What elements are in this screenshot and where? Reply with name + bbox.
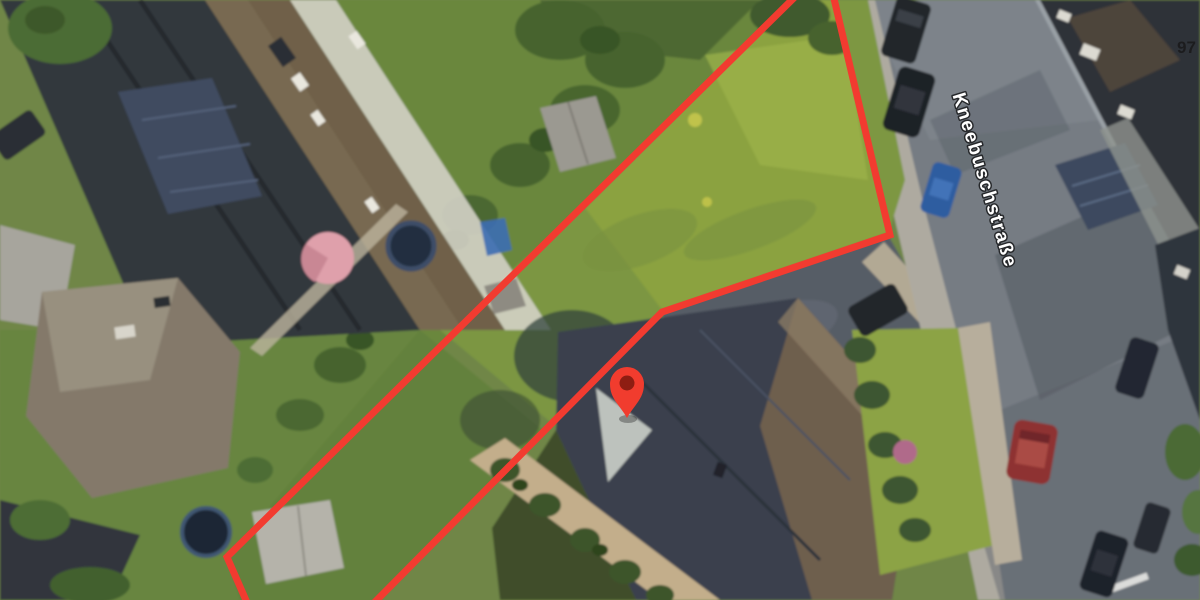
house-number-label: 97 xyxy=(1177,38,1196,57)
aerial-imagery xyxy=(0,0,1200,600)
garden-pool xyxy=(182,508,230,556)
bush xyxy=(512,479,528,491)
bush xyxy=(529,493,561,517)
bush xyxy=(854,381,890,409)
bush xyxy=(592,544,608,556)
flower-bush xyxy=(893,440,917,464)
satellite-map[interactable]: Kneebuschstraße 97 xyxy=(0,0,1200,600)
flower-bush xyxy=(702,197,712,207)
bush xyxy=(899,518,931,542)
tree xyxy=(276,399,324,431)
bush xyxy=(844,337,876,363)
bush xyxy=(609,560,641,584)
bush xyxy=(237,457,273,483)
pin-inner-circle xyxy=(620,376,635,391)
dark-garden-shade xyxy=(460,390,540,450)
bush xyxy=(10,500,70,540)
bush xyxy=(882,476,918,504)
trampoline xyxy=(388,223,434,269)
flower-bush xyxy=(688,113,702,127)
tree xyxy=(314,347,366,383)
tree xyxy=(580,26,620,54)
tree xyxy=(25,6,65,34)
satellite-imagery[interactable]: Kneebuschstraße 97 xyxy=(0,0,1200,600)
